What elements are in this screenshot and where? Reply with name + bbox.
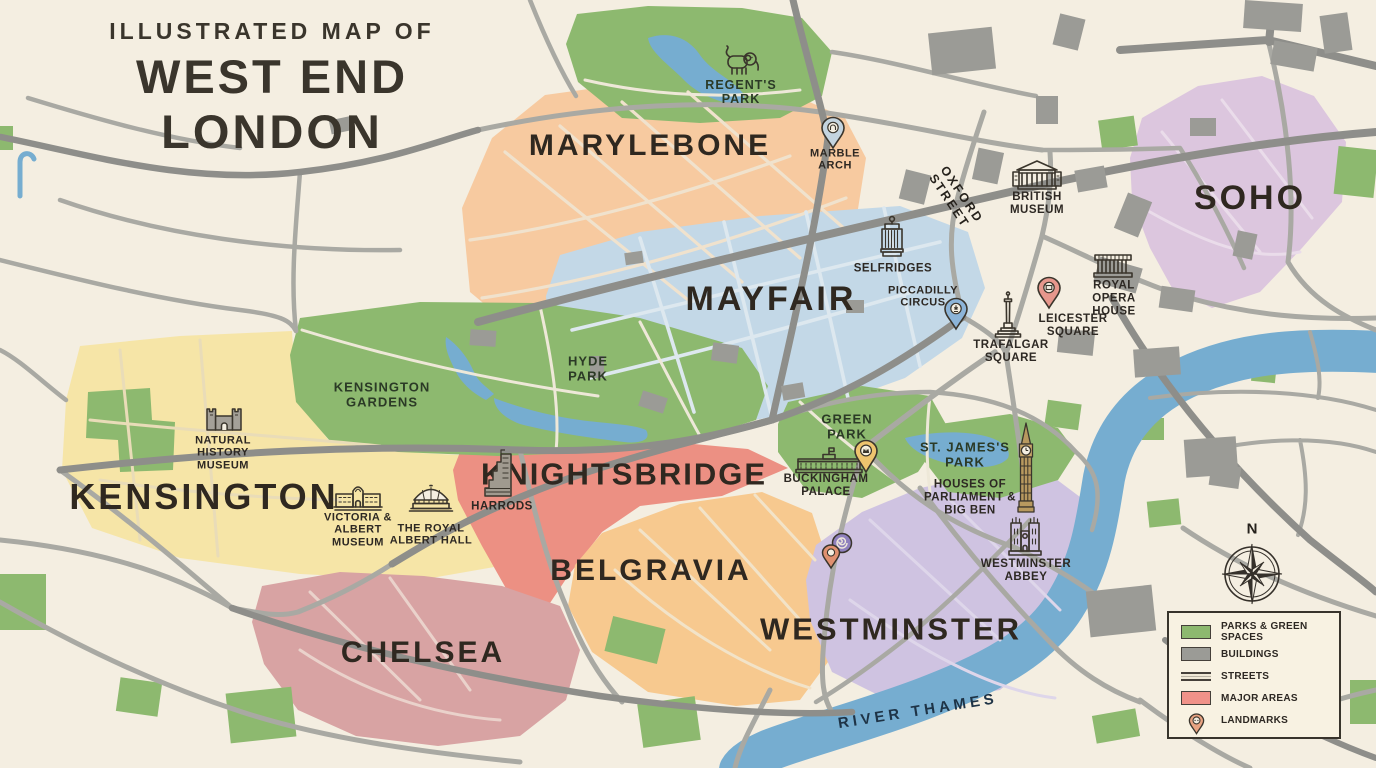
legend-row-landmarks: LANDMARKS bbox=[1181, 711, 1329, 729]
legend-label-landmarks: LANDMARKS bbox=[1221, 715, 1288, 726]
label-royal-albert-hall: THE ROYAL ALBERT HALL bbox=[380, 523, 482, 548]
legend-swatch-parks bbox=[1181, 625, 1211, 639]
label-soho: SOHO bbox=[1194, 179, 1306, 217]
illustrated-map-canvas: ILLUSTRATED MAP OF WEST END LONDON MARYL… bbox=[0, 0, 1376, 768]
label-westminster-abbey: WESTMINSTER ABBEY bbox=[976, 558, 1076, 584]
legend-swatch-buildings bbox=[1181, 647, 1211, 661]
legend-row-buildings: BUILDINGS bbox=[1181, 645, 1329, 663]
westminster-spiral-pin-icon bbox=[820, 530, 856, 572]
label-kensington-gardens: KENSINGTON GARDENS bbox=[317, 380, 447, 409]
label-buckingham-palace: BUCKINGHAM PALACE bbox=[776, 473, 876, 499]
label-westminster: WESTMINSTER bbox=[760, 613, 1022, 648]
label-marble-arch: MARBLE ARCH bbox=[805, 148, 865, 173]
piccadilly-circus-pin-icon bbox=[943, 297, 969, 331]
compass-north-label: N bbox=[1247, 521, 1258, 538]
royal-opera-house-icon bbox=[1090, 252, 1136, 280]
label-knightsbridge: KNIGHTSBRIDGE bbox=[481, 458, 767, 493]
label-chelsea: CHELSEA bbox=[341, 636, 505, 670]
label-hyde-park: HYDE PARK bbox=[558, 354, 618, 383]
compass-rose-icon bbox=[1216, 538, 1288, 610]
label-leicester-square: LEICESTER SQUARE bbox=[1033, 313, 1113, 339]
legend-pin-icon bbox=[1188, 713, 1205, 735]
legend-row-major-areas: MAJOR AREAS bbox=[1181, 689, 1329, 707]
royal-albert-hall-icon bbox=[407, 484, 455, 512]
legend-swatch-streets bbox=[1181, 672, 1211, 681]
legend-row-parks: PARKS & GREEN SPACES bbox=[1181, 623, 1329, 641]
marble-arch-pin-icon bbox=[820, 116, 846, 150]
big-ben-icon bbox=[1015, 422, 1037, 516]
label-st-james-park: ST. JAMES'S PARK bbox=[919, 440, 1011, 469]
legend-label-parks: PARKS & GREEN SPACES bbox=[1221, 621, 1329, 643]
legend-swatch-major-areas bbox=[1181, 691, 1211, 705]
label-kensington: KENSINGTON bbox=[69, 477, 338, 517]
legend-label-streets: STREETS bbox=[1221, 671, 1269, 682]
regents-park-zoo-elephant-icon bbox=[718, 44, 764, 80]
label-belgravia: BELGRAVIA bbox=[550, 554, 751, 588]
label-green-park: GREEN PARK bbox=[817, 412, 877, 441]
natural-history-museum-castle-icon bbox=[201, 403, 247, 435]
british-museum-icon bbox=[1011, 159, 1063, 193]
label-marylebone: MARYLEBONE bbox=[529, 129, 771, 163]
map-title-kicker: ILLUSTRATED MAP OF bbox=[36, 18, 508, 45]
label-natural-history-museum: NATURAL HISTORY MUSEUM bbox=[189, 435, 257, 472]
legend-swatch-landmarks bbox=[1181, 713, 1211, 727]
map-title-main: WEST END LONDON bbox=[36, 49, 508, 159]
label-houses-of-parliament: HOUSES OF PARLIAMENT & BIG BEN bbox=[922, 479, 1018, 518]
map-legend: PARKS & GREEN SPACES BUILDINGS STREETS M… bbox=[1167, 611, 1341, 739]
trafalgar-square-column-icon bbox=[994, 291, 1022, 343]
legend-label-major-areas: MAJOR AREAS bbox=[1221, 693, 1298, 704]
label-harrods: HARRODS bbox=[467, 501, 537, 514]
selfridges-icon bbox=[876, 215, 908, 259]
leicester-square-pin-icon bbox=[1036, 276, 1062, 310]
map-title: ILLUSTRATED MAP OF WEST END LONDON bbox=[36, 18, 508, 159]
label-regents-park: REGENT'S PARK bbox=[696, 78, 786, 106]
label-selfridges: SELFRIDGES bbox=[846, 263, 941, 276]
label-mayfair: MAYFAIR bbox=[686, 280, 857, 318]
legend-label-buildings: BUILDINGS bbox=[1221, 649, 1279, 660]
label-british-museum: BRITISH MUSEUM bbox=[1002, 191, 1072, 217]
westminster-abbey-icon bbox=[1003, 515, 1047, 561]
harrods-icon bbox=[480, 446, 514, 500]
legend-row-streets: STREETS bbox=[1181, 667, 1329, 685]
canal-mark bbox=[20, 154, 34, 196]
victoria-albert-museum-icon bbox=[332, 481, 384, 513]
green-park-crown-pin-icon bbox=[853, 439, 879, 475]
